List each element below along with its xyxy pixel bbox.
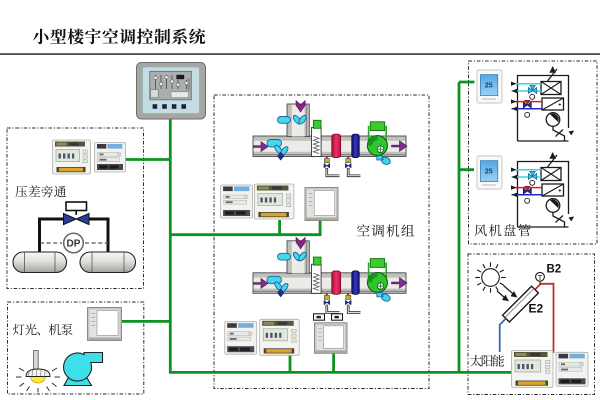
svg-text:25: 25 [485, 169, 493, 176]
svg-text:T: T [538, 273, 543, 282]
svg-text:DP: DP [67, 239, 81, 250]
svg-text:B2: B2 [547, 264, 562, 276]
svg-text:25: 25 [485, 83, 493, 90]
svg-text:E2: E2 [529, 302, 544, 316]
